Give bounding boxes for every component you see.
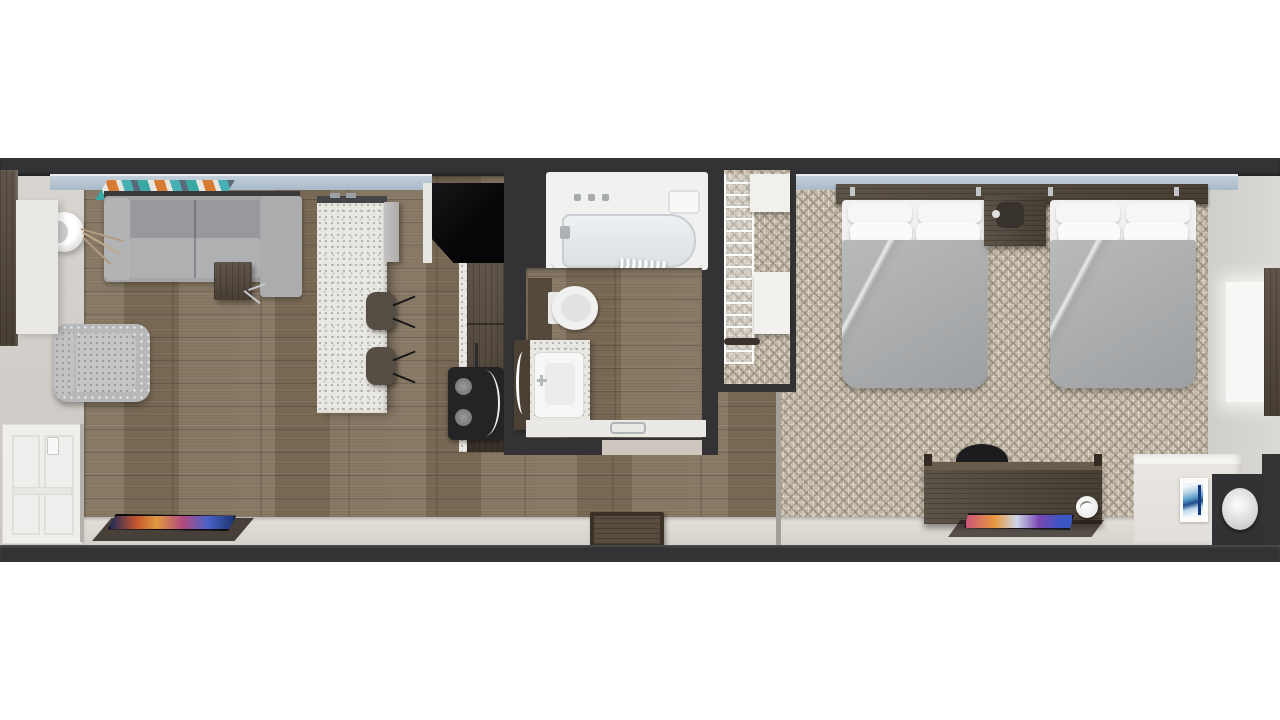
framed-art (1180, 478, 1208, 522)
vanity-mirror (514, 340, 530, 430)
floorplan-scene (0, 0, 1280, 720)
duvet (1050, 240, 1196, 388)
island-end-cabinet (384, 202, 399, 262)
pillow (1126, 203, 1190, 223)
sofa-cushion-split (194, 200, 196, 278)
kitchen-appliance (448, 367, 504, 440)
sink-faucet-handle (540, 375, 543, 386)
sconce (1048, 187, 1053, 196)
desk-top-edge (924, 462, 1102, 470)
tub-knob (588, 194, 595, 201)
bath-ledge (526, 420, 706, 437)
side-table (214, 262, 252, 300)
door-handle (47, 437, 59, 455)
white-sliding-panel (16, 200, 58, 334)
abstract-painting (1183, 483, 1203, 517)
closet-storage-box (754, 272, 790, 334)
door-panel-groove (12, 435, 40, 535)
closet-top-shelf (750, 174, 790, 212)
vanity-sink (534, 352, 584, 418)
island-fixture (346, 193, 356, 198)
living-tv-screen (108, 514, 236, 531)
island-fixture (330, 193, 340, 198)
sconce (1174, 187, 1179, 196)
desk-decor (1076, 496, 1098, 518)
tall-wardrobe (1264, 268, 1280, 416)
towel-bar (610, 422, 646, 434)
barn-door (2, 424, 82, 544)
tub-knob (574, 194, 581, 201)
duvet-fold (842, 240, 988, 388)
sofa (104, 196, 302, 300)
nightstand-lamp (996, 202, 1024, 228)
burner (455, 409, 472, 426)
sconce (850, 187, 855, 196)
door-swing-arc (470, 370, 500, 436)
decor-curve (1078, 499, 1094, 515)
nightstand (984, 196, 1046, 246)
kitchenette-counter-edge (423, 183, 432, 263)
clothes-rod (724, 338, 760, 345)
bed-1 (842, 200, 988, 390)
barstool (366, 347, 396, 385)
toilet-bowl (552, 286, 598, 330)
desk-leg (924, 454, 932, 466)
pillow (848, 203, 912, 223)
round-stool (1222, 488, 1258, 530)
pillow (918, 203, 982, 223)
duvet-fold (1050, 240, 1196, 388)
bathroom-door-threshold (602, 440, 702, 455)
sink-basin (545, 363, 575, 405)
tub-knob (602, 194, 609, 201)
bottom-wall (0, 545, 1280, 562)
barstool (366, 292, 396, 330)
mirror-highlight (516, 352, 530, 414)
desk-leg (1094, 454, 1102, 466)
armchair-cushion (76, 334, 136, 392)
closet (718, 158, 796, 392)
lamp-highlight (992, 210, 1000, 218)
pillow (1056, 203, 1120, 223)
duvet (842, 240, 988, 388)
sofa-chaise (260, 196, 302, 297)
wood-tray (590, 512, 664, 548)
cabinet-divider (467, 323, 504, 325)
door-rail (12, 487, 72, 495)
bathroom (504, 158, 718, 455)
armchair-arm (54, 330, 74, 396)
sconce (976, 187, 981, 196)
tub-faucet (560, 226, 570, 239)
painting-stroke (1198, 485, 1201, 515)
bed-2 (1050, 200, 1196, 390)
soap-shelf (668, 190, 700, 214)
burner (455, 378, 472, 395)
door-track-shadow (80, 424, 84, 542)
toilet-seat (561, 294, 591, 322)
armchair (54, 324, 150, 402)
floor-transition-strip (776, 390, 781, 545)
bedroom-tv-screen (964, 513, 1074, 530)
